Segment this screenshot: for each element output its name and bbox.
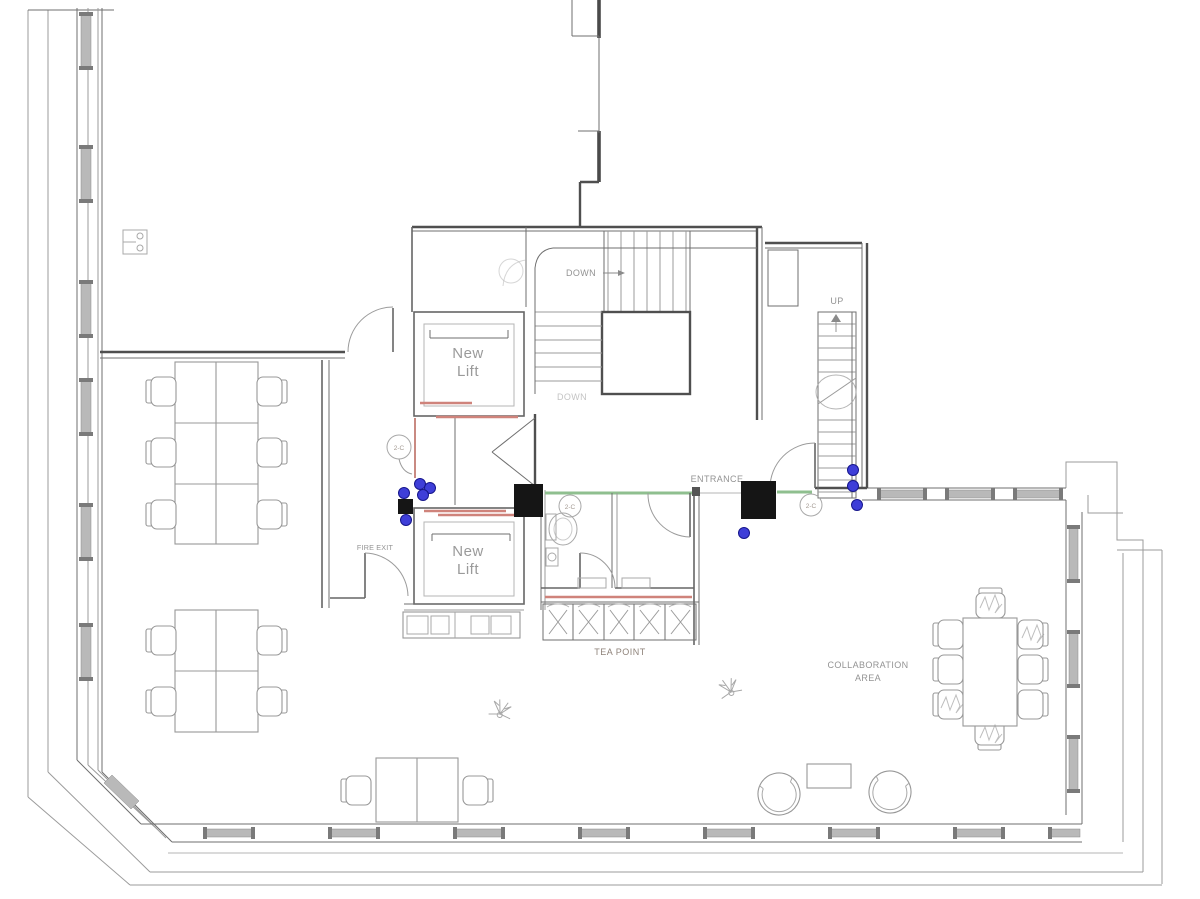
blue-marker [401, 515, 412, 526]
blue-marker [399, 488, 410, 499]
tea-point: TEA POINT [543, 604, 696, 657]
armchair-right [865, 767, 915, 817]
lift-upper-label-2: Lift [457, 363, 479, 380]
collab-label-1: COLLABORATION [827, 660, 908, 670]
blue-marker [739, 528, 750, 539]
collaboration-area: COLLABORATION AREA [488, 588, 1048, 819]
column-fire-exit [398, 499, 413, 514]
entrance-door-swing [770, 443, 815, 488]
wc-block: 2-C [541, 487, 700, 645]
plant [716, 675, 743, 699]
stair-main: DOWN DOWN [535, 231, 757, 402]
entrance-label: ENTRANCE [691, 474, 744, 484]
tea-point-label: TEA POINT [594, 647, 646, 657]
lift-upper: New Lift [414, 312, 524, 478]
riser-cupboard [768, 250, 798, 306]
stair-up-label: UP [830, 296, 843, 306]
lift-lower-label-2: Lift [457, 561, 479, 578]
chair [146, 500, 176, 529]
plant [488, 698, 514, 721]
wc-basin-2 [622, 578, 650, 588]
meeting-table [963, 618, 1017, 726]
lounge-group [754, 764, 915, 819]
chair [146, 438, 176, 467]
lift-lower: New Lift [404, 508, 524, 610]
blue-marker [415, 479, 426, 490]
lockers [403, 612, 520, 638]
lift-lower-door-accent [424, 511, 518, 515]
up-arrow [831, 314, 841, 322]
lift-upper-label-1: New [452, 345, 484, 362]
armchair-left [754, 769, 805, 820]
left-window-mullions [79, 12, 93, 681]
column-entrance [741, 481, 776, 519]
collab-label-2: AREA [855, 673, 881, 683]
fire-exit-label: FIRE EXIT [357, 543, 394, 552]
chair [257, 626, 287, 655]
stair-down-label-2: DOWN [557, 392, 587, 402]
accessible-wc-fixtures [546, 513, 577, 566]
office-door [348, 307, 393, 352]
chair [1018, 655, 1048, 684]
blue-marker [418, 490, 429, 501]
chair [257, 438, 287, 467]
right-window-mullions [1067, 525, 1080, 793]
top-window-mullions [877, 488, 1063, 500]
desk-small [341, 758, 493, 822]
chair [976, 588, 1005, 618]
coffee-table [807, 764, 851, 788]
wc-right-door-swing [648, 493, 690, 537]
chair [257, 377, 287, 406]
lift-lower-label-1: New [452, 543, 484, 560]
column-center [514, 484, 543, 517]
floor-plan-canvas: New Lift New Lift DOWN DOWN UP [0, 0, 1200, 899]
blue-markers [399, 465, 863, 539]
wall-fixture [123, 230, 147, 254]
chair [257, 687, 287, 716]
wc-left-door-swing [580, 553, 615, 588]
stair-down-label: DOWN [566, 268, 596, 278]
riser-chevron [492, 418, 535, 486]
lift-upper-door-accent [420, 403, 518, 417]
meeting-table-group [933, 588, 1048, 750]
floor-plan-drawing: New Lift New Lift DOWN DOWN UP [0, 0, 1200, 899]
chair [146, 626, 176, 655]
fire-exit-door [330, 553, 408, 598]
blue-marker [848, 465, 859, 476]
door-tag-wc-text: 2-C [565, 504, 576, 511]
door-tag-entrance-text: 2-C [806, 503, 817, 510]
glazing-jamb [692, 487, 700, 496]
wc-basin-1 [578, 578, 606, 588]
desk-bank-b [146, 610, 287, 732]
door-tag-corridor-text: 2-C [394, 445, 405, 452]
chair [1018, 690, 1048, 719]
chair [257, 500, 287, 529]
chair [463, 776, 493, 805]
blue-marker [852, 500, 863, 511]
chair [146, 377, 176, 406]
chair [933, 655, 963, 684]
bottom-window-mullions [203, 827, 1080, 839]
blue-marker [848, 481, 859, 492]
chair [341, 776, 371, 805]
desk-bank-a [146, 362, 287, 544]
top-room-fixture [499, 259, 523, 283]
stair-landing [602, 312, 690, 394]
chair [146, 687, 176, 716]
chair [933, 620, 963, 649]
